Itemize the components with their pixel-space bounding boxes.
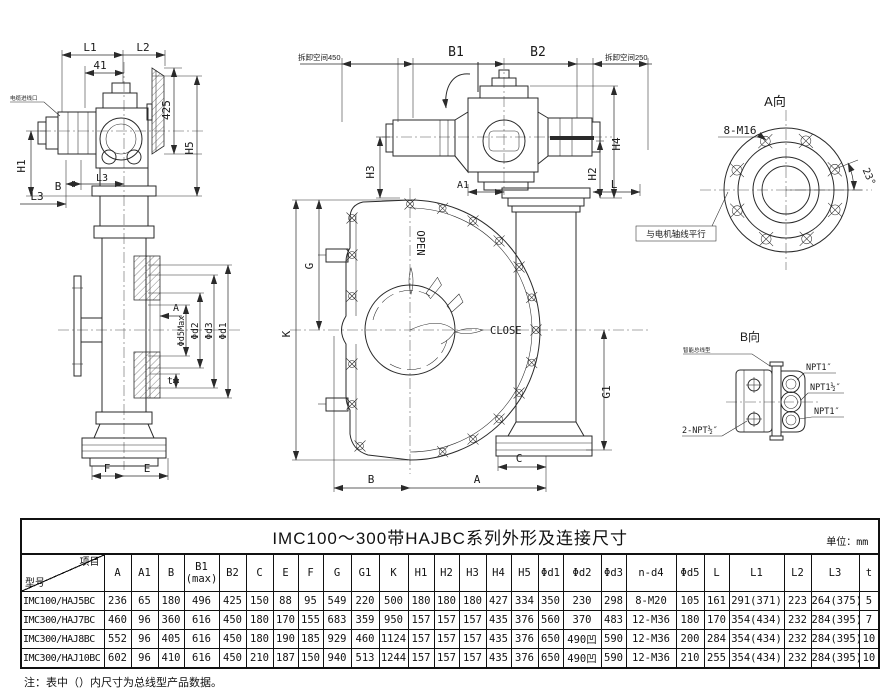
- value-cell: 359: [351, 611, 379, 630]
- value-cell: 360: [158, 611, 184, 630]
- value-cell: 232: [784, 611, 811, 630]
- value-cell: 10: [859, 630, 879, 649]
- value-cell: 929: [323, 630, 351, 649]
- table-row: IMC300/HAJ8BC552964056164501801901859294…: [21, 630, 879, 649]
- value-cell: 602: [104, 649, 131, 669]
- open-label: OPEN: [414, 230, 426, 255]
- column-header-H3: H3: [459, 554, 486, 592]
- value-cell: 410: [158, 649, 184, 669]
- dim-t: t: [167, 376, 173, 387]
- value-cell: 590: [601, 649, 626, 669]
- value-cell: 650: [538, 649, 563, 669]
- value-cell: 65: [131, 592, 158, 611]
- column-header-A: A: [104, 554, 131, 592]
- column-header-H4: H4: [486, 554, 511, 592]
- value-cell: 157: [434, 630, 459, 649]
- column-header-H1: H1: [408, 554, 434, 592]
- value-cell: 560: [538, 611, 563, 630]
- column-header-Φd1: Φd1: [538, 554, 563, 592]
- value-cell: 284: [704, 630, 729, 649]
- column-header-B1: B1 (max): [184, 554, 219, 592]
- value-cell: 405: [158, 630, 184, 649]
- dim-removal-space-450: 拆卸空间450: [298, 52, 341, 62]
- value-cell: 150: [246, 592, 273, 611]
- value-cell: 354(434): [729, 630, 784, 649]
- table-row: IMC300/HAJ10BC60296410616450210187150940…: [21, 649, 879, 669]
- dim-L2: L2: [136, 41, 149, 54]
- column-header-t: t: [859, 554, 879, 592]
- value-cell: 12-M36: [626, 611, 676, 630]
- corner-model-label: 型号: [25, 578, 45, 590]
- value-cell: 157: [434, 611, 459, 630]
- value-cell: 155: [298, 611, 323, 630]
- value-cell: 157: [408, 630, 434, 649]
- dim-41: 41: [93, 59, 106, 72]
- value-cell: 284(395): [811, 611, 859, 630]
- value-cell: 354(434): [729, 649, 784, 669]
- dim-d2: Φd2: [190, 322, 201, 339]
- dim-L: L: [611, 178, 618, 191]
- value-cell: 180: [408, 592, 434, 611]
- value-cell: 96: [131, 611, 158, 630]
- dim-H3: H3: [364, 165, 377, 178]
- column-header-F: F: [298, 554, 323, 592]
- value-cell: 590: [601, 630, 626, 649]
- cable-entry-label: 电缆进线口: [10, 94, 38, 102]
- column-header-L2: L2: [784, 554, 811, 592]
- table-title: IMC100～300带HAJBC系列外形及连接尺寸: [272, 529, 628, 548]
- dim-23deg: 23°: [860, 166, 877, 187]
- column-header-C: C: [246, 554, 273, 592]
- value-cell: 7: [859, 611, 879, 630]
- front-valve-column: [496, 188, 592, 456]
- drawing-sheet: L1 L2 41 425 H5 H1 B L3: [0, 0, 895, 687]
- column-header-L: L: [704, 554, 729, 592]
- port-top-label: NPT1″: [806, 363, 832, 373]
- column-header-K: K: [379, 554, 408, 592]
- value-cell: 232: [784, 649, 811, 669]
- port-mid-label: NPT1½″: [810, 382, 841, 393]
- model-cell: IMC300/HAJ8BC: [21, 630, 104, 649]
- value-cell: 940: [323, 649, 351, 669]
- rear-ports-label: 2-NPT½″: [682, 425, 718, 436]
- dim-d3: Φd3: [204, 322, 215, 339]
- value-cell: 161: [704, 592, 729, 611]
- value-cell: 425: [219, 592, 246, 611]
- value-cell: 950: [379, 611, 408, 630]
- value-cell: 350: [538, 592, 563, 611]
- dim-H2: H2: [586, 167, 599, 180]
- close-label: CLOSE: [490, 325, 522, 337]
- column-header-G: G: [323, 554, 351, 592]
- value-cell: 376: [511, 611, 538, 630]
- value-cell: 200: [676, 630, 704, 649]
- value-cell: 650: [538, 630, 563, 649]
- value-cell: 490凹: [563, 630, 601, 649]
- technical-drawing: L1 L2 41 425 H5 H1 B L3: [0, 0, 895, 516]
- value-cell: 157: [459, 649, 486, 669]
- column-header-Φd3: Φd3: [601, 554, 626, 592]
- column-header-n-d4: n-d4: [626, 554, 676, 592]
- value-cell: 435: [486, 611, 511, 630]
- value-cell: 157: [434, 649, 459, 669]
- side-dimensions: L1 L2 41 425 H5 H1 B L3: [10, 41, 232, 480]
- column-header-A1: A1: [131, 554, 158, 592]
- front-bottom-dimensions: C B A: [334, 336, 546, 492]
- front-view: 拆卸空间450 B1 B2 拆卸空间250 H3 H4 H2 A1 L: [280, 45, 652, 492]
- side-gearbox: [96, 83, 148, 168]
- value-cell: 157: [408, 611, 434, 630]
- value-cell: 616: [184, 649, 219, 669]
- dim-B: B: [55, 180, 62, 193]
- view-b: B向 智能总线型 NPT1″ NPT1½″ NPT1″: [682, 329, 844, 440]
- model-cell: IMC100/HAJ5BC: [21, 592, 104, 611]
- value-cell: 1124: [379, 630, 408, 649]
- dim-K: K: [280, 330, 293, 337]
- value-cell: 500: [379, 592, 408, 611]
- side-view: L1 L2 41 425 H5 H1 B L3: [10, 41, 242, 480]
- value-cell: 370: [563, 611, 601, 630]
- value-cell: 12-M36: [626, 630, 676, 649]
- value-cell: 427: [486, 592, 511, 611]
- value-cell: 96: [131, 630, 158, 649]
- value-cell: 170: [704, 611, 729, 630]
- dim-A-front: A: [474, 473, 481, 486]
- value-cell: 210: [246, 649, 273, 669]
- column-header-E: E: [273, 554, 298, 592]
- value-cell: 435: [486, 649, 511, 669]
- value-cell: 12-M36: [626, 649, 676, 669]
- column-header-H2: H2: [434, 554, 459, 592]
- value-cell: 180: [434, 592, 459, 611]
- dim-B-front: B: [368, 473, 375, 486]
- value-cell: 187: [273, 649, 298, 669]
- value-cell: 376: [511, 649, 538, 669]
- bolt-spec-label: 8-M16: [723, 124, 756, 137]
- dim-425: 425: [160, 100, 173, 120]
- corner-header: 项目 型号: [21, 554, 104, 592]
- dim-B2: B2: [530, 45, 546, 60]
- column-header-G1: G1: [351, 554, 379, 592]
- port-bottom-label: NPT1″: [814, 407, 840, 417]
- value-cell: 210: [676, 649, 704, 669]
- value-cell: 180: [459, 592, 486, 611]
- column-header-Φd2: Φd2: [563, 554, 601, 592]
- model-cell: IMC300/HAJ10BC: [21, 649, 104, 669]
- value-cell: 460: [104, 611, 131, 630]
- dim-H5: H5: [183, 141, 196, 154]
- value-cell: 450: [219, 611, 246, 630]
- dim-B1: B1: [448, 45, 464, 60]
- value-cell: 354(434): [729, 611, 784, 630]
- axis-note-label: 与电机轴线平行: [646, 229, 706, 239]
- value-cell: 298: [601, 592, 626, 611]
- dim-L3-mid: L3: [96, 173, 108, 184]
- value-cell: 170: [273, 611, 298, 630]
- table-row: IMC300/HAJ7BC460963606164501801701556833…: [21, 611, 879, 630]
- value-cell: 334: [511, 592, 538, 611]
- value-cell: 220: [351, 592, 379, 611]
- value-cell: 157: [459, 611, 486, 630]
- value-cell: 157: [459, 630, 486, 649]
- value-cell: 435: [486, 630, 511, 649]
- model-cell: IMC300/HAJ7BC: [21, 611, 104, 630]
- value-cell: 284(395): [811, 630, 859, 649]
- value-cell: 236: [104, 592, 131, 611]
- column-header-H5: H5: [511, 554, 538, 592]
- value-cell: 185: [298, 630, 323, 649]
- dim-F: F: [104, 462, 111, 475]
- front-height-dimensions: H3 H4 H2 A1 L: [364, 86, 640, 198]
- rotation-pointers: [409, 268, 483, 344]
- value-cell: 291(371): [729, 592, 784, 611]
- value-cell: 180: [158, 592, 184, 611]
- table-title-cell: IMC100～300带HAJBC系列外形及连接尺寸 单位：mm: [21, 519, 879, 554]
- dimension-table-section: IMC100～300带HAJBC系列外形及连接尺寸 单位：mm 项目 型号 AA…: [20, 518, 880, 690]
- value-cell: 513: [351, 649, 379, 669]
- value-cell: 190: [273, 630, 298, 649]
- dim-H4: H4: [610, 137, 623, 151]
- view-a-title: A向: [764, 94, 786, 109]
- value-cell: 490凹: [563, 649, 601, 669]
- dim-L1: L1: [83, 41, 96, 54]
- dim-removal-space-250: 拆卸空间250: [605, 52, 648, 62]
- view-a: A向 8-M16 23° 与电机轴线平行: [636, 94, 877, 270]
- dimension-table: IMC100～300带HAJBC系列外形及连接尺寸 单位：mm 项目 型号 AA…: [20, 518, 880, 669]
- column-header-B: B: [158, 554, 184, 592]
- value-cell: 223: [784, 592, 811, 611]
- bus-type-label: 智能总线型: [683, 346, 711, 354]
- column-header-Φd5: Φd5: [676, 554, 704, 592]
- value-cell: 8-M20: [626, 592, 676, 611]
- dim-A1: A1: [457, 180, 469, 191]
- column-header-L1: L1: [729, 554, 784, 592]
- value-cell: 616: [184, 630, 219, 649]
- value-cell: 180: [676, 611, 704, 630]
- value-cell: 284(395): [811, 649, 859, 669]
- value-cell: 180: [246, 630, 273, 649]
- value-cell: 616: [184, 611, 219, 630]
- value-cell: 105: [676, 592, 704, 611]
- dim-A-side: A: [173, 303, 179, 314]
- value-cell: 376: [511, 630, 538, 649]
- value-cell: 5: [859, 592, 879, 611]
- view-b-title: B向: [740, 329, 760, 344]
- side-valve-column: [72, 168, 166, 466]
- value-cell: 230: [563, 592, 601, 611]
- value-cell: 450: [219, 630, 246, 649]
- value-cell: 10: [859, 649, 879, 669]
- value-cell: 232: [784, 630, 811, 649]
- value-cell: 483: [601, 611, 626, 630]
- value-cell: 264(375): [811, 592, 859, 611]
- gear-case: OPEN CLOSE: [318, 199, 542, 461]
- dim-E: E: [144, 462, 151, 475]
- side-motor: [38, 112, 96, 154]
- front-actuator: [386, 62, 600, 190]
- value-cell: 157: [408, 649, 434, 669]
- value-cell: 255: [704, 649, 729, 669]
- dim-C: C: [516, 452, 523, 465]
- value-cell: 88: [273, 592, 298, 611]
- dim-H1: H1: [15, 159, 28, 172]
- corner-item-label: 项目: [80, 557, 100, 569]
- value-cell: 96: [131, 649, 158, 669]
- value-cell: 460: [351, 630, 379, 649]
- value-cell: 496: [184, 592, 219, 611]
- value-cell: 150: [298, 649, 323, 669]
- table-row: IMC100/HAJ5BC236651804964251508895549220…: [21, 592, 879, 611]
- table-note: 注：表中（）内尺寸为总线型产品数据。: [24, 674, 880, 690]
- column-header-L3: L3: [811, 554, 859, 592]
- dim-G: G: [303, 263, 316, 270]
- value-cell: 450: [219, 649, 246, 669]
- dim-L3-low: L3: [30, 190, 43, 203]
- column-header-B2: B2: [219, 554, 246, 592]
- value-cell: 552: [104, 630, 131, 649]
- dim-G1: G1: [600, 385, 613, 398]
- dim-d5max: Φd5Max: [177, 316, 187, 347]
- unit-label: 单位：mm: [826, 533, 868, 548]
- value-cell: 180: [246, 611, 273, 630]
- value-cell: 95: [298, 592, 323, 611]
- value-cell: 1244: [379, 649, 408, 669]
- dim-d1: Φd1: [218, 322, 229, 339]
- value-cell: 549: [323, 592, 351, 611]
- value-cell: 683: [323, 611, 351, 630]
